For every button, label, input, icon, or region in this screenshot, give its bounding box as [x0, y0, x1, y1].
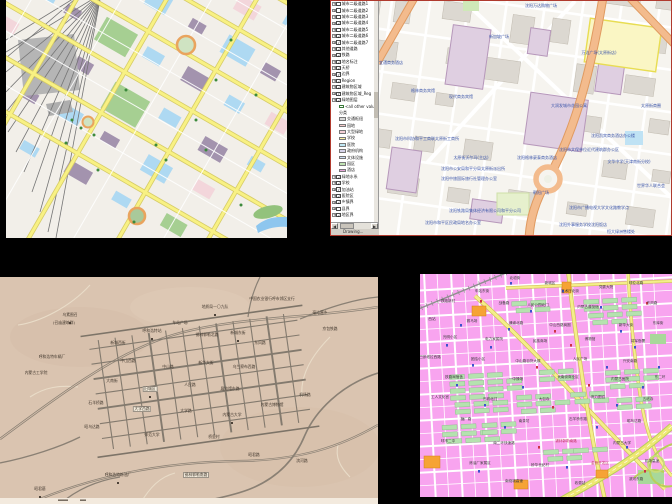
map-label: 人民公园北门 [527, 304, 549, 308]
layer-label: 加油站 [342, 187, 354, 193]
map-label: 内蒙古医院 [611, 378, 629, 382]
layer-label: 文体设施 [347, 155, 363, 161]
map-label: 沈阳凯宾商务酒店办公楼 [591, 134, 635, 138]
map-label: 昭君路 [248, 453, 259, 457]
expand-icon[interactable]: + [332, 28, 336, 32]
layer-label: 边界 [342, 71, 350, 77]
map-label: 师范大学 [144, 433, 159, 437]
map-label: 艺术厅北街 [561, 290, 579, 294]
map-label: 宜通商务酒店 [379, 61, 403, 65]
map-label: 大润发城市花园公寓 [551, 104, 587, 108]
map-label: 巴彦塔拉西路 [420, 356, 441, 360]
layer-checkbox[interactable] [336, 194, 340, 198]
map-label: 昭君墓 [34, 487, 45, 491]
layer-tree-panel: +城市二级道路1+城市二级道路2+城市二级道路3+城市二级道路4+城市二级道路5… [331, 1, 379, 229]
map-label: 桥华世纪村 [531, 464, 549, 468]
map-label: 桥靠村 [208, 435, 219, 439]
gis-window: +城市二级道路1+城市二级道路2+城市二级道路3+城市二级道路4+城市二级道路5… [330, 0, 672, 236]
layer-label: 县界 [342, 206, 350, 212]
expand-icon[interactable]: + [332, 34, 336, 38]
map-label: 博物馆 [585, 338, 596, 342]
map-label: 东二环 [655, 376, 666, 380]
map-label: 将军衙署 [631, 340, 645, 344]
expand-icon[interactable]: + [332, 207, 336, 211]
layer-label: 酒店 [347, 167, 355, 173]
map-label: 格林商务宾馆 [411, 89, 435, 93]
map-label: 滨河东路 [629, 478, 643, 482]
map-label: 内蒙古大学 [223, 413, 242, 417]
pink-map-panel: 北垣街新城区车站东街艺术厅北街党委大院呼伦北路铁路新村战备路人民公园北门内蒙古展… [420, 274, 672, 497]
map-label: 东风路 [254, 341, 265, 345]
layer-tree: +城市二级道路1+城市二级道路2+城市二级道路3+城市二级道路4+城市二级道路5… [331, 1, 374, 218]
map-label: 文华中学(天津南街分校) [607, 160, 650, 164]
map-label: 新城区 [545, 282, 556, 286]
map-label: 中山西路商圈 [549, 324, 571, 328]
expand-icon[interactable]: + [332, 175, 336, 179]
legend-swatch [339, 130, 346, 134]
map-label: 中山西路 [120, 359, 135, 363]
layer-checkbox[interactable] [336, 213, 340, 217]
layer-checkbox[interactable] [336, 98, 340, 102]
layer-label: 城市二级道路7 [342, 40, 369, 46]
map-label: 一中操场 [509, 378, 523, 382]
legend-swatch [339, 143, 346, 147]
map-label: 万达广场(太原街店) [581, 51, 616, 55]
layer-label: 建筑物区域 [342, 84, 362, 90]
map-label: 南绕城高速 [505, 480, 523, 484]
map-label: 大召寺 [539, 398, 550, 402]
layer-tree-horizontal-scrollbar[interactable]: ◀ ▶ [331, 222, 378, 229]
map-label: 昭乌达路 [627, 420, 641, 424]
map-label: 东风路 [647, 302, 658, 306]
gis-map-labels: 沈阳万达购物广场新加坡广场万达广场(太原街店)宜通商务酒店格林商务宾馆现代商务宾… [379, 1, 671, 235]
map-label: 沈阳市文保单位近代建筑群办公区 [559, 148, 619, 152]
expand-icon[interactable]: + [332, 47, 336, 51]
map-label: 光明小区 [443, 336, 457, 340]
layer-label: 城市二级道路5 [342, 27, 369, 33]
map-label: 民族商场 [533, 340, 547, 344]
map-label: 中国农业银行呼市郊区支行 [249, 297, 295, 301]
layer-item[interactable]: +地区界 [331, 212, 374, 218]
map-label: 呼伦北路 [629, 282, 643, 286]
layer-checkbox[interactable] [336, 79, 340, 83]
layer-label: 城市二级道路3 [342, 14, 369, 20]
map-label: 北垣街 [510, 277, 521, 281]
map-label: 石羊桥东路 [569, 418, 587, 422]
map-label: 滨河路 [296, 459, 307, 463]
map-label: 新华大街 [198, 361, 213, 365]
map-label: 锡林郭勒南路 [555, 440, 577, 444]
layer-tree-vertical-scrollbar[interactable] [374, 1, 378, 229]
map-label: 毫沁营乡 [312, 311, 327, 315]
map-label: 电力家属院 [485, 338, 503, 342]
map-label: 南茶坊 [519, 420, 530, 424]
layer-checkbox[interactable] [336, 85, 340, 89]
map-label: 沈阳市科协和平工商联太原街工商所 [395, 137, 459, 141]
layer-label: 铁路 [342, 52, 350, 58]
layer-label: 天桥 [342, 65, 350, 71]
map-label: 炼油厂家属区 [469, 462, 491, 466]
map-label: 机场高速 [645, 460, 659, 464]
layer-item[interactable]: +城市二级道路6 [331, 33, 374, 39]
layer-label: 医院区 [342, 193, 354, 199]
map-label: 中山路百货大楼 [515, 360, 540, 364]
expand-icon[interactable]: + [332, 2, 336, 6]
status-text: Drawing... [343, 229, 363, 234]
old-map-labels: 地质局一〇九队中国农业银行呼市郊区支行乌素图召(召庙建筑群)呼和浩特车辆厂内蒙古… [0, 277, 378, 504]
legend-swatch [339, 105, 344, 109]
layer-item[interactable]: +建筑物区域_Reg [331, 90, 374, 96]
map-label: 新城西街 [110, 341, 125, 345]
layer-label: 建筑物区域_Reg [342, 91, 372, 97]
expand-icon[interactable]: + [332, 73, 336, 77]
map-label: 新城东街 [230, 331, 245, 335]
layer-checkbox[interactable] [336, 21, 340, 25]
layer-label: 地名标注 [342, 59, 358, 65]
expand-icon[interactable]: + [332, 60, 336, 64]
expand-icon[interactable]: + [332, 15, 336, 19]
pink-map-labels: 北垣街新城区车站东街艺术厅北街党委大院呼伦北路铁路新村战备路人民公园北门内蒙古展… [420, 274, 672, 497]
layer-checkbox[interactable] [336, 175, 340, 179]
map-label: 锡林郭勒北路 [196, 333, 219, 337]
roundabouts [83, 36, 196, 224]
map-label: 沈阳铁路局集体经济有限公司和平分公司 [449, 209, 521, 213]
map-label: 收费站 [575, 482, 586, 486]
layer-label: 学校 [342, 180, 350, 186]
expand-icon[interactable]: + [332, 92, 336, 96]
layer-checkbox[interactable] [336, 47, 340, 51]
map-label: 世界华人联合会 [637, 184, 665, 188]
expand-icon[interactable]: + [332, 9, 336, 13]
legend-swatch [339, 137, 346, 141]
map-label: 沈阳格林豪泰商务酒店 [517, 156, 557, 160]
legend-swatch [339, 169, 346, 173]
layer-checkbox[interactable] [336, 60, 340, 64]
map-label: 展览馆东路 [221, 387, 240, 391]
map-label: 新华大街 [619, 324, 633, 328]
map-label: 沈阳市公安局和平分局太原街派出所 [441, 167, 505, 171]
map-label: 五塔寺 [643, 398, 654, 402]
expand-icon[interactable]: + [332, 181, 336, 185]
map-label: 大南街商业区 [557, 376, 579, 380]
legend-swatch [339, 162, 346, 166]
layer-checkbox[interactable] [336, 8, 340, 12]
map-label: 中山路 [162, 365, 173, 369]
map-label: 铁路新村 [441, 300, 455, 304]
layer-label: 城市二级道路2 [342, 8, 369, 14]
map-label: 现代商务宾馆 [449, 95, 473, 99]
layer-label: 园区 [347, 161, 355, 167]
map-label: 太原街商圈 [641, 104, 661, 108]
map-label: 机场路 [299, 393, 310, 397]
map-label: 西站 [428, 318, 435, 322]
expand-icon[interactable]: + [332, 85, 336, 89]
layer-label: 乡镇界 [342, 199, 354, 205]
legend-swatch [339, 149, 346, 153]
map-label: 旧城区 [143, 386, 158, 392]
expand-icon[interactable]: + [332, 54, 336, 58]
expand-icon[interactable]: + [332, 194, 336, 198]
layer-checkbox[interactable] [336, 40, 340, 44]
layer-label: 医院 [347, 142, 355, 148]
osm-map-panel [6, 0, 287, 238]
map-label: 内蒙古博物馆 [261, 403, 284, 407]
map-label: 大南街 [106, 379, 117, 383]
layer-item[interactable]: +城市二级道路7 [331, 39, 374, 45]
layer-checkbox[interactable] [336, 72, 340, 76]
layer-label: 交通枢纽 [347, 116, 363, 122]
map-label: 人民广场 [573, 358, 587, 362]
layer-label: 地区界 [342, 212, 354, 218]
map-label: 大学路 [180, 409, 191, 413]
layer-label: 城市二级道路6 [342, 33, 369, 39]
map-label: 呼市二中 [441, 440, 455, 444]
map-collage: { "collage": { "background": "#000000" }… [0, 0, 672, 504]
layer-label: 学校 [347, 135, 355, 141]
map-label: 团结小区 [471, 358, 485, 362]
layer-label: 城市二级道路4 [342, 20, 369, 26]
river [252, 203, 287, 233]
expand-icon[interactable]: + [332, 213, 336, 217]
osm-map-canvas [6, 0, 287, 238]
map-label: 呼和浩特炼油厂 [105, 473, 132, 477]
map-label: 呼和浩特车辆厂 [39, 355, 66, 359]
map-label: 乌兰察布西路 [233, 365, 256, 369]
legend-swatch [339, 156, 346, 160]
layer-checkbox[interactable] [336, 28, 340, 32]
map-label: 赛马场 [467, 320, 478, 324]
map-label: 沈阳外事服务学校沈阳饭店 [559, 223, 607, 227]
gis-map-view[interactable]: 沈阳万达购物广场新加坡广场万达广场(太原街店)宜通商务酒店格林商务宾馆现代商务宾… [379, 1, 671, 235]
map-label: 党委大院 [599, 286, 613, 290]
map-label: 通道北路 [509, 322, 523, 326]
legend-swatch [339, 124, 346, 128]
map-label: 新加坡广场 [489, 35, 509, 39]
map-label: 内蒙古大学 [613, 442, 631, 446]
layer-label: 绿地图层 [342, 97, 358, 103]
expand-icon[interactable]: + [332, 188, 336, 192]
map-label: 乌素图召 [62, 313, 77, 317]
layer-checkbox[interactable] [336, 53, 340, 57]
expand-icon[interactable]: + [332, 22, 336, 26]
map-label: 沈阳中旅国际旅行社管理办公室 [441, 177, 497, 181]
layer-checkbox[interactable] [336, 15, 340, 19]
expand-icon[interactable]: + [332, 41, 336, 45]
map-label: 呼和浩特站 [143, 329, 162, 333]
map-label: 太原街沃尔玛(主店) [453, 156, 488, 160]
scrollbar-thumb[interactable] [374, 92, 378, 118]
map-label: 旧城北门 [483, 398, 497, 402]
map-label: 沈阳市和平区民政局地名办公室 [425, 221, 481, 225]
map-label: 工人文化宫 [431, 396, 449, 400]
map-label: 车站广场 [172, 321, 187, 325]
map-label: 昭乌达路 [84, 425, 99, 429]
map-label: (召庙建筑群) [53, 321, 75, 325]
scroll-right-arrow-icon[interactable]: ▶ [371, 223, 378, 229]
layer-checkbox[interactable] [336, 34, 340, 38]
map-label: 大学西路 [133, 406, 151, 412]
expand-icon[interactable]: + [332, 79, 336, 83]
map-label: 锡林郭勒南路 [183, 472, 209, 478]
map-label: 朝阳广场 [533, 191, 549, 195]
map-label: 南二环快速路 [493, 442, 515, 446]
map-label: 京包铁路 [322, 327, 337, 331]
layer-label: Region [342, 78, 356, 83]
map-label: 恒大绿洲售楼处 [607, 230, 635, 234]
layer-checkbox[interactable] [336, 92, 340, 96]
map-label: 沈阳万达购物广场 [525, 4, 557, 8]
map-label: 兴安南路 [623, 360, 637, 364]
map-label: 糖厂路 [461, 418, 472, 422]
expand-icon[interactable]: + [332, 66, 336, 70]
map-label: 车站东街 [475, 290, 489, 294]
layer-label: 绿地水系 [342, 174, 358, 180]
layer-checkbox[interactable] [336, 187, 340, 191]
layer-item[interactable]: +城市二级道路4 [331, 20, 374, 26]
layer-label: <all other values> [345, 104, 374, 109]
layer-checkbox[interactable] [336, 207, 340, 211]
expand-icon[interactable]: + [332, 98, 336, 102]
layer-checkbox[interactable] [336, 200, 340, 204]
map-label: 席力图召 [591, 396, 605, 400]
map-label: 地质局一〇九队 [202, 305, 229, 309]
map-label: 人民路 [184, 383, 195, 387]
layer-label: 分类 [339, 110, 347, 116]
map-label: 金桥开发区 [591, 462, 609, 466]
map-label: 沈阳市广播电视大学文化路教学点 [569, 206, 629, 210]
layer-label: 大型绿地 [347, 129, 363, 135]
map-label: 战备路 [499, 302, 510, 306]
layer-checkbox[interactable] [336, 181, 340, 185]
expand-icon[interactable]: + [332, 201, 336, 205]
map-label: 石羊桥路 [88, 401, 103, 405]
layer-label: 园地 [347, 123, 355, 129]
map-label: 内蒙古展览馆 [577, 306, 599, 310]
layer-label: 其他道路 [342, 46, 358, 52]
legend-swatch [339, 117, 346, 121]
layer-checkbox[interactable] [336, 66, 340, 70]
layer-label: 政府机构 [347, 148, 363, 154]
map-label: 铁路局宿舍 [445, 376, 463, 380]
map-label: 东库街 [653, 322, 664, 326]
map-label: 内蒙古工学院 [25, 371, 48, 375]
layer-label: 城市二级道路1 [342, 1, 369, 7]
layer-checkbox[interactable] [336, 2, 340, 6]
old-scanned-map-panel: 地质局一〇九队中国农业银行呼市郊区支行乌素图召(召庙建筑群)呼和浩特车辆厂内蒙古… [0, 277, 378, 504]
scroll-left-arrow-icon[interactable]: ◀ [331, 223, 338, 229]
